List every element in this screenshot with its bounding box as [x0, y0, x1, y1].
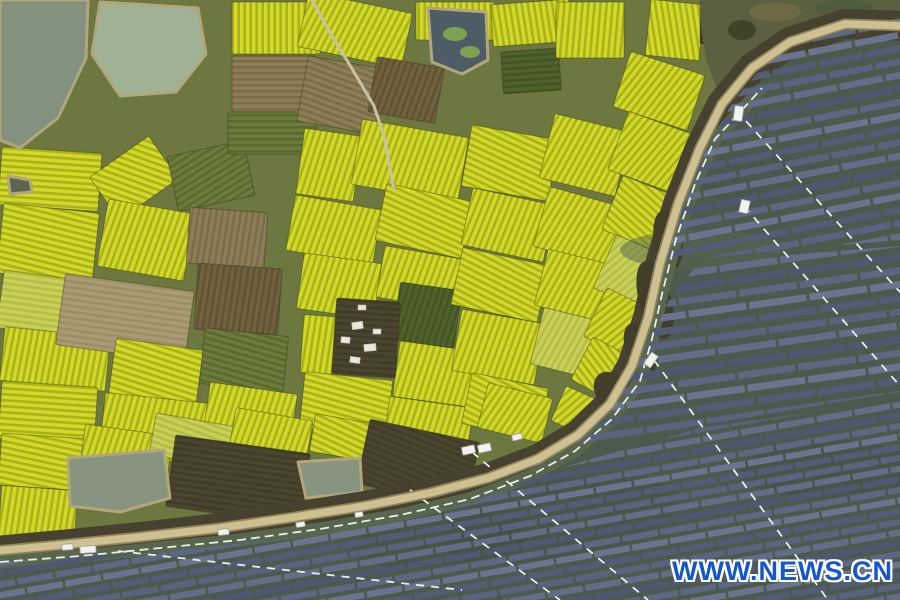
field-patch: [194, 263, 282, 335]
pond-algae: [443, 27, 467, 41]
aerial-scene: [0, 0, 900, 600]
field-patch: [645, 0, 705, 61]
field-patch: [186, 207, 268, 268]
field-patch: [296, 128, 363, 201]
pond: [428, 8, 488, 74]
pond: [68, 450, 170, 512]
floating-platform: [62, 544, 73, 551]
floating-platform: [218, 528, 230, 535]
pond: [298, 458, 362, 498]
field-patch: [392, 282, 461, 348]
farm-building: [373, 329, 381, 334]
field-patch: [501, 48, 562, 94]
marsh-blob: [749, 3, 801, 21]
field-patch: [556, 2, 624, 58]
pond: [8, 176, 32, 194]
farm-building: [358, 305, 366, 310]
watermark: WWW.NEWS.CN: [672, 556, 893, 587]
farm-building: [341, 337, 350, 344]
farm-building: [352, 321, 364, 329]
farm-building: [350, 356, 361, 363]
pond-algae: [460, 46, 480, 58]
field-patch: [368, 57, 445, 124]
floating-platform: [80, 545, 96, 553]
floating-platform: [296, 521, 306, 527]
floating-platform: [355, 511, 364, 517]
aerial-photo: WWW.NEWS.CN: [0, 0, 900, 600]
marsh-blob: [728, 20, 756, 40]
floating-platform: [733, 105, 744, 121]
farm-building: [364, 343, 377, 351]
